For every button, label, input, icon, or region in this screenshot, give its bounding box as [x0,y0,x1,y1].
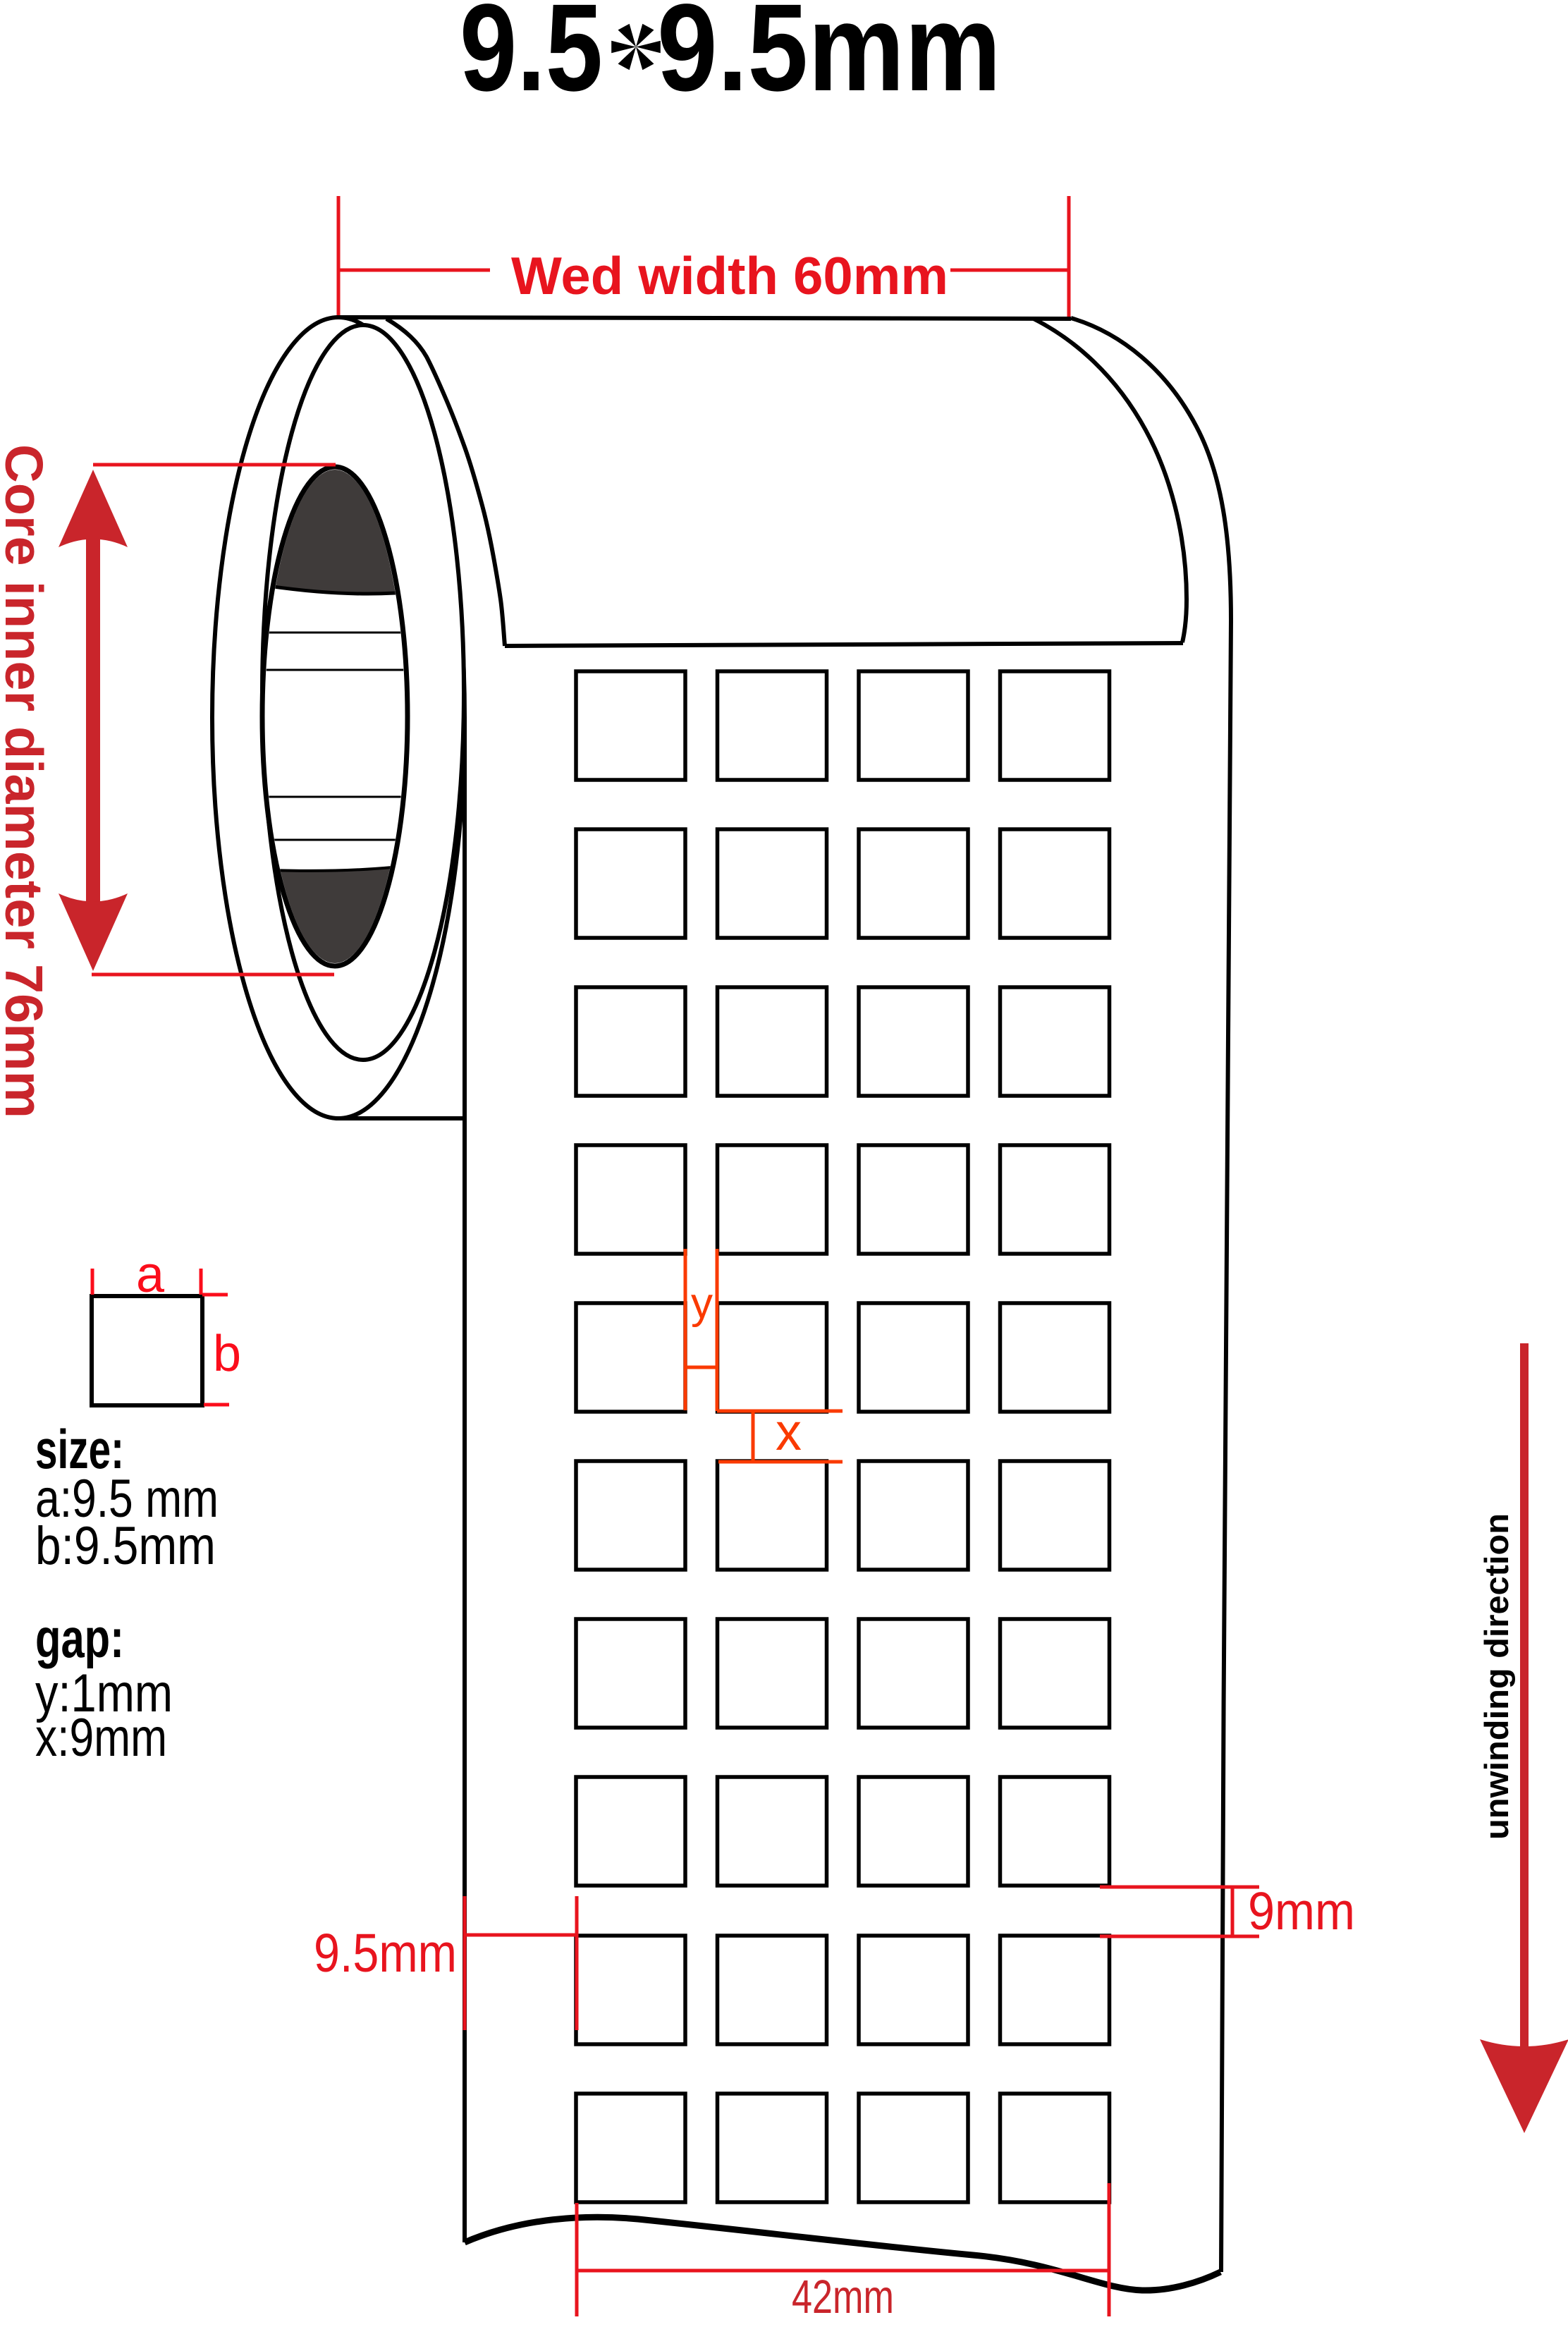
svg-text:b: b [213,1326,241,1382]
svg-text:b:9.5mm: b:9.5mm [35,1516,216,1576]
svg-text:x:9mm: x:9mm [35,1708,167,1768]
svg-text:9.5mm: 9.5mm [657,0,1001,117]
svg-text:9.5mm: 9.5mm [314,1923,457,1984]
svg-text:x: x [776,1403,802,1461]
svg-text:Core inner diameter 76mm: Core inner diameter 76mm [0,444,54,1118]
svg-text:9.5: 9.5 [460,0,603,117]
svg-text:unwinding direction: unwinding direction [1478,1513,1515,1840]
svg-text:42mm: 42mm [792,2271,894,2323]
svg-text:gap:: gap: [35,1607,124,1669]
svg-text:9mm: 9mm [1248,1881,1355,1941]
svg-text:y: y [691,1279,713,1328]
svg-text:Wed width 60mm: Wed width 60mm [511,246,948,305]
svg-text:a: a [136,1247,165,1303]
